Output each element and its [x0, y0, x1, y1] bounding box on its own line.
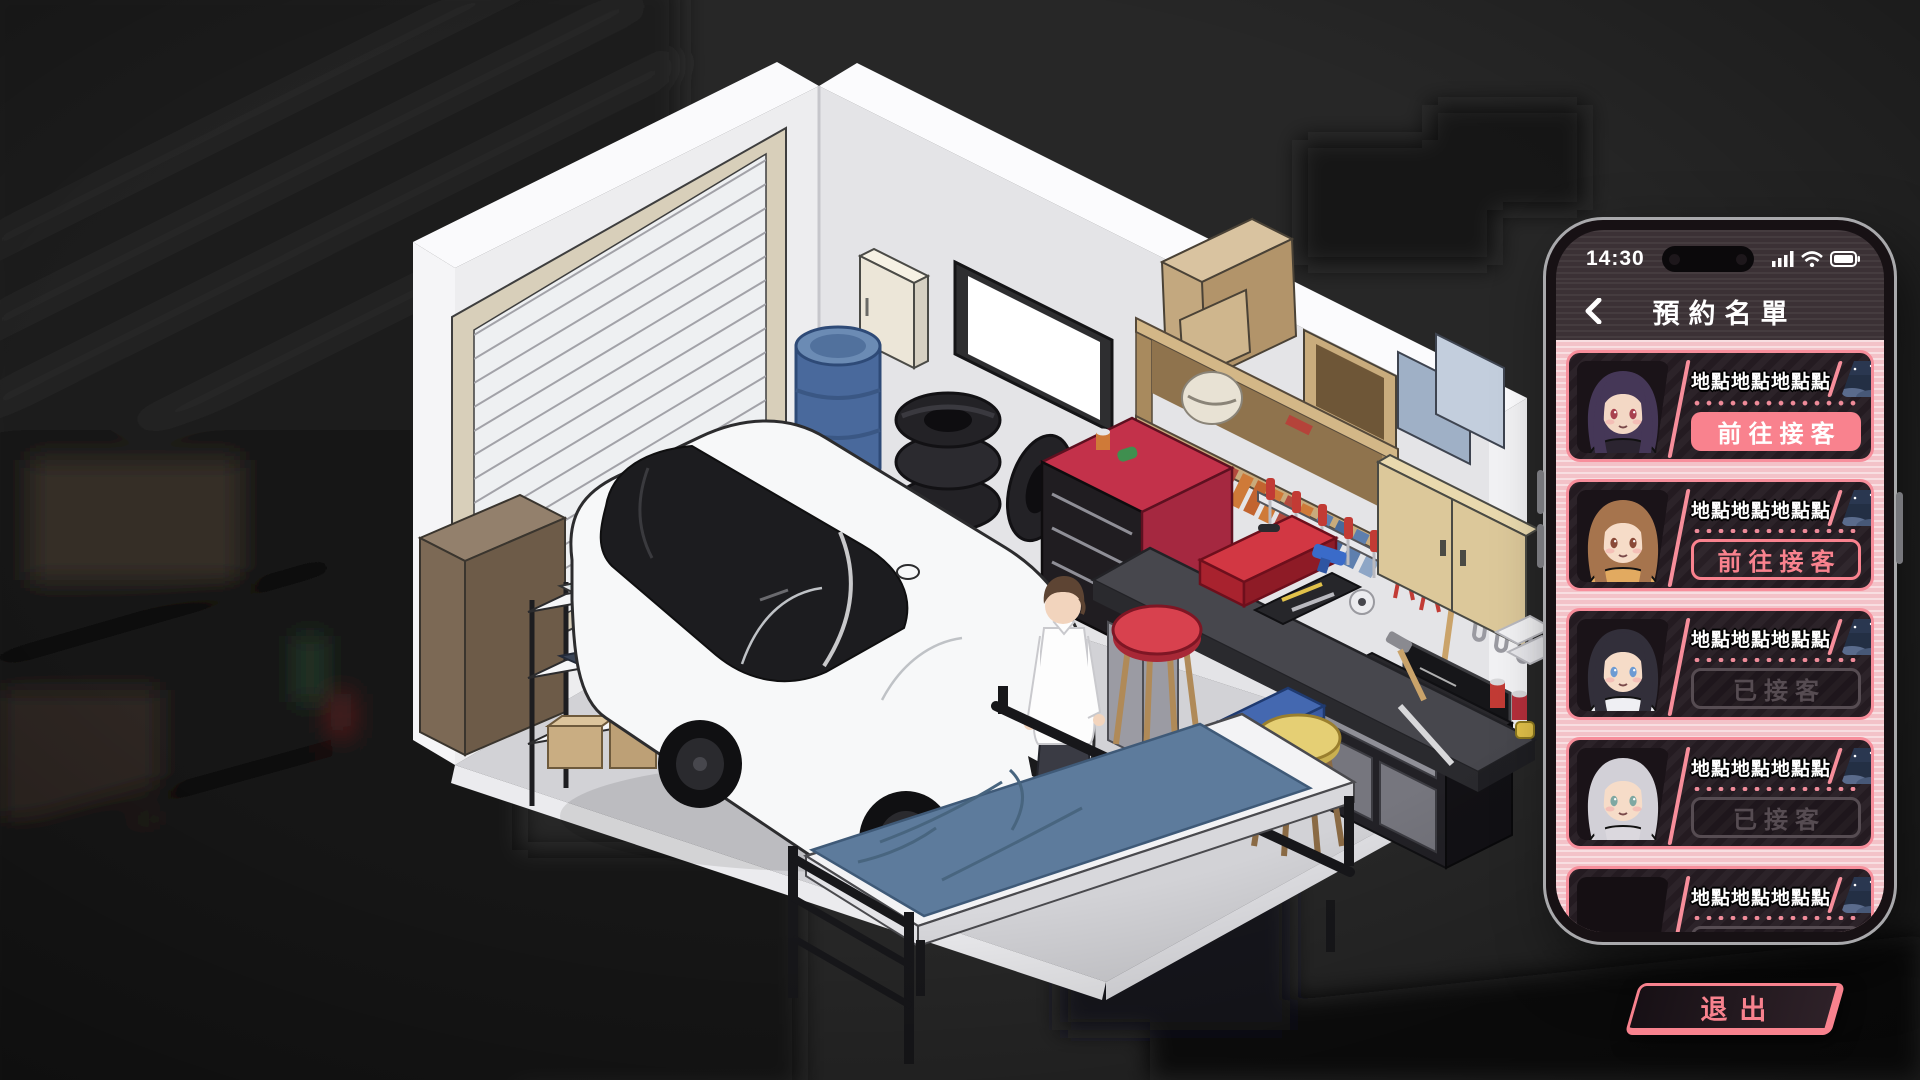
- avatar: [1577, 490, 1669, 582]
- action-button[interactable]: 前往接客: [1691, 412, 1861, 451]
- dotted-divider: [1691, 400, 1859, 406]
- divider-slash: [1667, 489, 1690, 587]
- exit-button-label: 退出: [1688, 988, 1778, 1027]
- reservation-card[interactable]: 地點地點地點點: [1566, 350, 1874, 462]
- dynamic-island: [1662, 246, 1754, 272]
- location-label: 地點地點地點點: [1691, 361, 1831, 394]
- divider-slash: [1667, 618, 1690, 716]
- page-title: 預約名單: [1556, 292, 1884, 331]
- volume-down-button: [1537, 524, 1544, 568]
- phone-screen: 14:30: [1556, 230, 1884, 932]
- location-label: 地點地點地點點: [1691, 877, 1831, 910]
- dotted-divider: [1691, 787, 1859, 791]
- time-badge: [1831, 619, 1874, 655]
- location-label: 地點地點地點點: [1691, 748, 1831, 781]
- battery-icon: [1830, 251, 1860, 267]
- nav-bar: 預約名單: [1556, 282, 1884, 340]
- action-button: 已接客: [1691, 797, 1861, 838]
- phone: 14:30: [1543, 217, 1897, 945]
- moon-night-icon: [1841, 490, 1874, 526]
- reservation-card[interactable]: 地點地點地點點 前往: [1566, 479, 1874, 591]
- reservation-list: 地點地點地點點: [1556, 340, 1884, 932]
- clock: 14:30: [1586, 247, 1645, 271]
- avatar: [1577, 877, 1669, 932]
- avatar: [1577, 361, 1669, 453]
- dotted-divider: [1691, 916, 1859, 920]
- moon-night-icon: [1841, 877, 1874, 913]
- reservation-card[interactable]: 地點地點地點點 已接: [1566, 866, 1874, 932]
- moon-night-icon: [1841, 619, 1874, 655]
- divider-slash: [1667, 876, 1690, 932]
- location-label: 地點地點地點點: [1691, 619, 1831, 652]
- status-bar: 14:30: [1556, 230, 1884, 282]
- action-button: 已接客: [1691, 926, 1861, 932]
- moon-night-icon: [1841, 361, 1874, 397]
- avatar: [1577, 748, 1669, 840]
- time-badge: [1831, 490, 1874, 526]
- time-badge: [1831, 748, 1874, 784]
- action-button: 已接客: [1691, 668, 1861, 709]
- divider-slash: [1667, 360, 1690, 458]
- location-label: 地點地點地點點: [1691, 490, 1831, 523]
- volume-up-button: [1537, 470, 1544, 514]
- power-button: [1896, 492, 1903, 564]
- dotted-divider: [1691, 529, 1859, 533]
- reservation-card[interactable]: 地點地點地點點 已接: [1566, 737, 1874, 849]
- moon-night-icon: [1841, 748, 1874, 784]
- wifi-icon: [1801, 251, 1823, 267]
- time-badge: [1831, 361, 1874, 397]
- time-badge: [1831, 877, 1874, 913]
- exit-button[interactable]: 退出: [1625, 983, 1846, 1035]
- signal-icon: [1772, 251, 1794, 267]
- action-button[interactable]: 前往接客: [1691, 539, 1861, 580]
- avatar: [1577, 619, 1669, 711]
- reservation-card[interactable]: 地點地點地點點 已接: [1566, 608, 1874, 720]
- dotted-divider: [1691, 658, 1859, 662]
- divider-slash: [1667, 747, 1690, 845]
